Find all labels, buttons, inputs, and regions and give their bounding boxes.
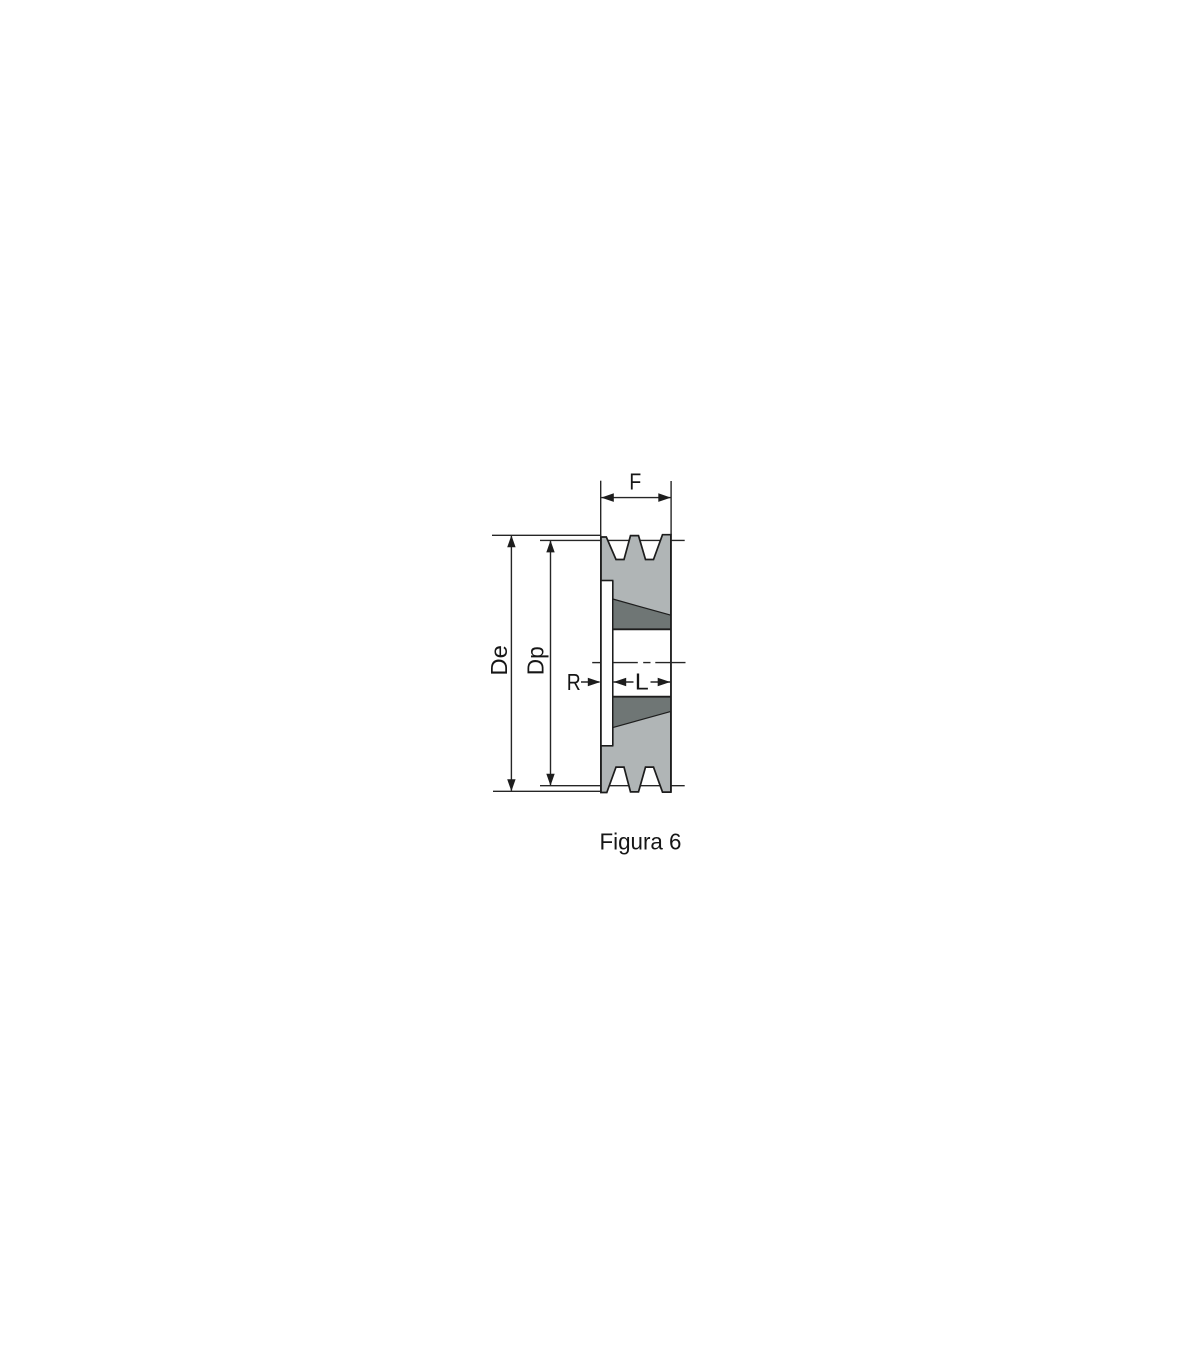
svg-text:R: R bbox=[567, 669, 581, 695]
svg-text:F: F bbox=[629, 469, 641, 495]
svg-text:L: L bbox=[635, 669, 649, 695]
svg-text:Dp: Dp bbox=[523, 646, 549, 675]
svg-text:De: De bbox=[486, 645, 512, 676]
svg-text:Figura 6: Figura 6 bbox=[600, 828, 682, 854]
